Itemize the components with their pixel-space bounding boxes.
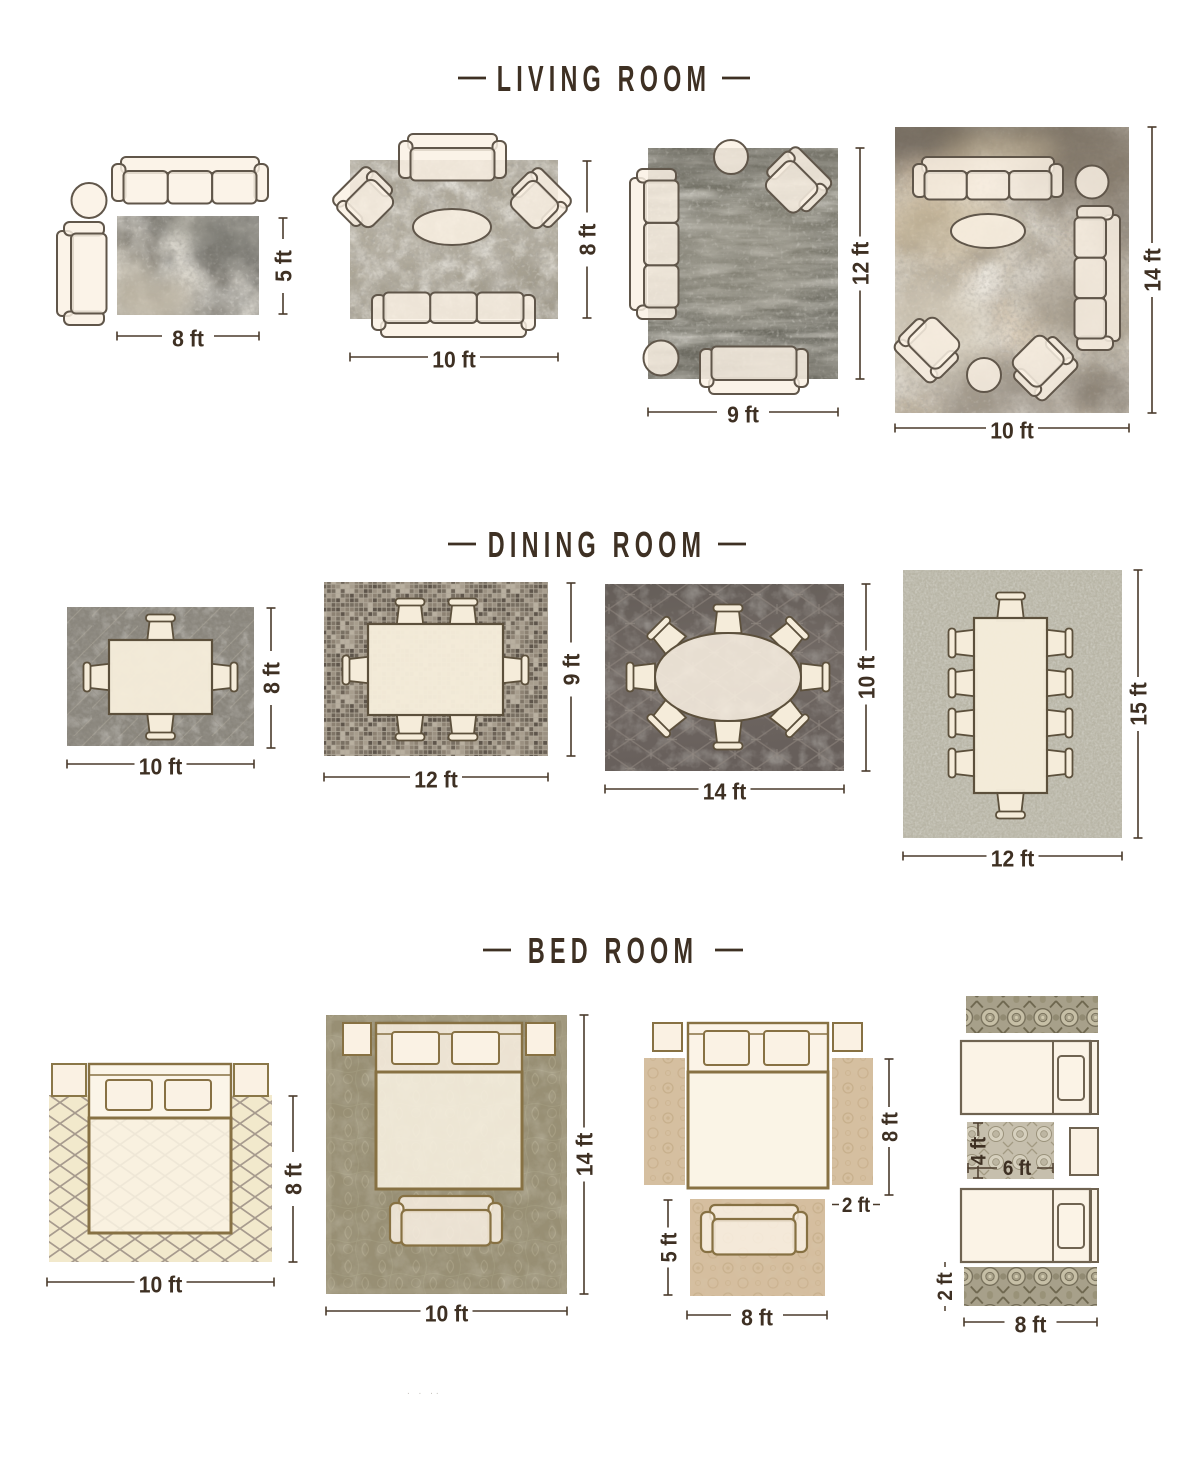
svg-text:4 ft: 4 ft (968, 1136, 991, 1165)
svg-text:10 ft: 10 ft (853, 655, 879, 699)
svg-text:10 ft: 10 ft (432, 346, 476, 372)
svg-text:5 ft: 5 ft (658, 1233, 682, 1263)
svg-text:12 ft: 12 ft (847, 241, 873, 285)
svg-text:LIVING ROOM: LIVING ROOM (497, 60, 711, 99)
svg-text:12 ft: 12 ft (414, 766, 458, 792)
svg-text:12 ft: 12 ft (991, 845, 1035, 871)
svg-text:9 ft: 9 ft (727, 401, 759, 427)
svg-text:DINING ROOM: DINING ROOM (488, 526, 706, 565)
svg-text:8 ft: 8 ft (172, 325, 204, 351)
svg-text:. . ..: . . .. (407, 1386, 442, 1397)
svg-text:15 ft: 15 ft (1125, 682, 1151, 726)
svg-text:10 ft: 10 ft (139, 753, 183, 779)
svg-text:14 ft: 14 ft (703, 778, 747, 804)
svg-text:8 ft: 8 ft (741, 1304, 773, 1330)
svg-text:2 ft: 2 ft (934, 1272, 957, 1301)
svg-text:5 ft: 5 ft (270, 250, 296, 282)
svg-text:14 ft: 14 ft (1139, 248, 1165, 292)
svg-text:9 ft: 9 ft (558, 653, 584, 685)
svg-text:8 ft: 8 ft (258, 662, 284, 694)
svg-text:6 ft: 6 ft (1003, 1157, 1032, 1180)
svg-text:10 ft: 10 ft (425, 1300, 469, 1326)
svg-text:10 ft: 10 ft (990, 417, 1034, 443)
svg-text:8 ft: 8 ft (1015, 1311, 1047, 1337)
svg-text:BED ROOM: BED ROOM (528, 932, 698, 971)
svg-text:8 ft: 8 ft (574, 223, 600, 255)
svg-text:8 ft: 8 ft (280, 1163, 306, 1195)
svg-text:8 ft: 8 ft (879, 1112, 903, 1142)
svg-text:2 ft: 2 ft (842, 1194, 871, 1217)
svg-text:10 ft: 10 ft (139, 1271, 183, 1297)
svg-text:14 ft: 14 ft (571, 1132, 597, 1176)
